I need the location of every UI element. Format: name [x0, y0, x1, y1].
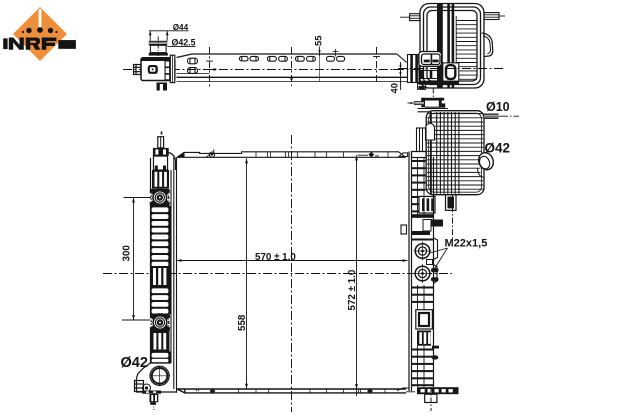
- svg-text:55: 55: [313, 36, 324, 46]
- svg-text:570 ± 1.0: 570 ± 1.0: [255, 252, 296, 263]
- svg-text:Ø42.5: Ø42.5: [172, 38, 196, 48]
- svg-text:40: 40: [389, 83, 400, 93]
- svg-text:Ø42: Ø42: [485, 141, 511, 156]
- svg-text:300: 300: [122, 245, 133, 262]
- svg-text:572 ± 1.0: 572 ± 1.0: [347, 269, 358, 310]
- svg-text:558: 558: [237, 314, 248, 331]
- svg-text:M22x1,5: M22x1,5: [445, 238, 488, 250]
- svg-text:Ø44: Ø44: [173, 23, 189, 32]
- svg-text:Ø42: Ø42: [121, 355, 148, 371]
- svg-text:Ø10: Ø10: [486, 100, 510, 114]
